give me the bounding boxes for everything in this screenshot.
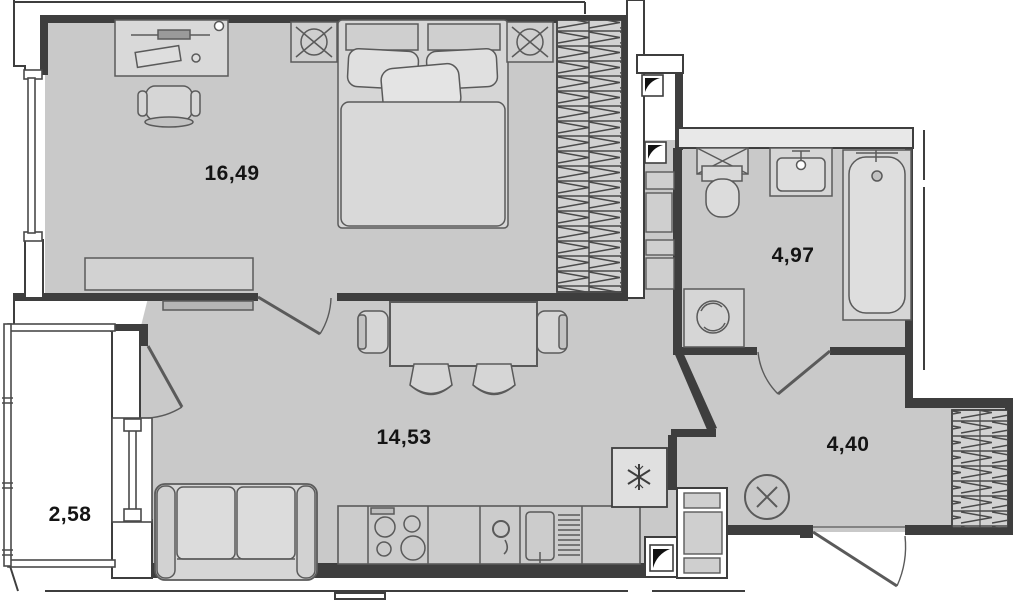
balcony-glazing (4, 324, 11, 566)
desk (115, 20, 228, 76)
blanket (341, 102, 505, 226)
outline-top (15, 2, 585, 14)
wall-channel (627, 0, 644, 298)
wall-below-window (25, 240, 43, 298)
balcony-window-cap-top (124, 419, 141, 431)
entrance-door (813, 527, 906, 586)
office-chair (138, 86, 200, 127)
dining-table (390, 302, 537, 366)
bathtub (843, 150, 911, 320)
wall-nook-bottom (671, 429, 716, 437)
chair-bottom-2 (473, 364, 515, 395)
wall-bedroom-left-upper (40, 15, 48, 75)
fridge (612, 448, 667, 507)
balcony-window-unit (112, 418, 152, 522)
wash-basin (770, 148, 832, 196)
vent-square-1 (642, 75, 663, 96)
wall-bathroom-bottom-left (673, 347, 757, 355)
balcony-bottom-rail (8, 560, 115, 567)
headboard-right (428, 24, 500, 50)
wall-living-left-upper (140, 324, 148, 346)
tv-console (163, 301, 253, 310)
floorplan-canvas: 16,49 4,97 14,53 4,40 2,58 (0, 0, 1032, 600)
bedroom-area-label: 16,49 (204, 162, 259, 185)
shaft-cells (646, 172, 674, 289)
balcony-window-cap-bottom (124, 509, 141, 521)
low-cabinet (85, 258, 253, 290)
sofa (155, 484, 317, 580)
bathroom-area-label: 4,97 (772, 244, 815, 267)
wall-bedroom-bottom-right (337, 293, 628, 301)
vent-square-2 (645, 142, 666, 163)
built-in-wardrobe (557, 20, 622, 292)
outline-top-left (14, 0, 43, 73)
balcony-top-rail (8, 324, 115, 331)
hall-wardrobe (952, 410, 1008, 528)
wall-step-top (637, 55, 683, 73)
window-glass (28, 78, 35, 233)
washing-machine (684, 289, 744, 347)
balcony-area-label: 2,58 (49, 503, 92, 526)
kitchen-vent-box (645, 537, 677, 577)
wall-kitchen-right (668, 435, 677, 490)
headboard-left (346, 24, 418, 50)
wall-entrance-left-jamb (800, 525, 813, 538)
desk-lamp-icon (215, 22, 224, 31)
living-area-label: 14,53 (376, 426, 431, 449)
chair-bottom-1 (410, 364, 452, 395)
toilet (702, 166, 742, 217)
bedroom-window (24, 70, 42, 241)
wall-bathroom-top-thick (678, 128, 913, 148)
wall-bedroom-bottom-left (13, 293, 258, 301)
balcony-window-glass (129, 430, 136, 510)
kitchen-counter (338, 506, 640, 564)
service-cabinet (677, 488, 727, 578)
double-bed (338, 20, 508, 228)
nightstand-right (507, 22, 553, 62)
outline-bottom-stub (335, 593, 385, 599)
desk-mouse (192, 54, 200, 62)
wall-bathroom-bottom-right (830, 347, 913, 355)
wall-balcony-door-pier (112, 520, 152, 578)
nightstand-left (291, 22, 337, 62)
balcony (2, 324, 115, 567)
wall-hall-top-right (905, 398, 1013, 408)
outline-bottom-left-diagonal (10, 566, 18, 591)
hallway-area-label: 4,40 (827, 433, 870, 456)
floorplan-drawing: 16,49 4,97 14,53 4,40 2,58 (0, 0, 1032, 600)
